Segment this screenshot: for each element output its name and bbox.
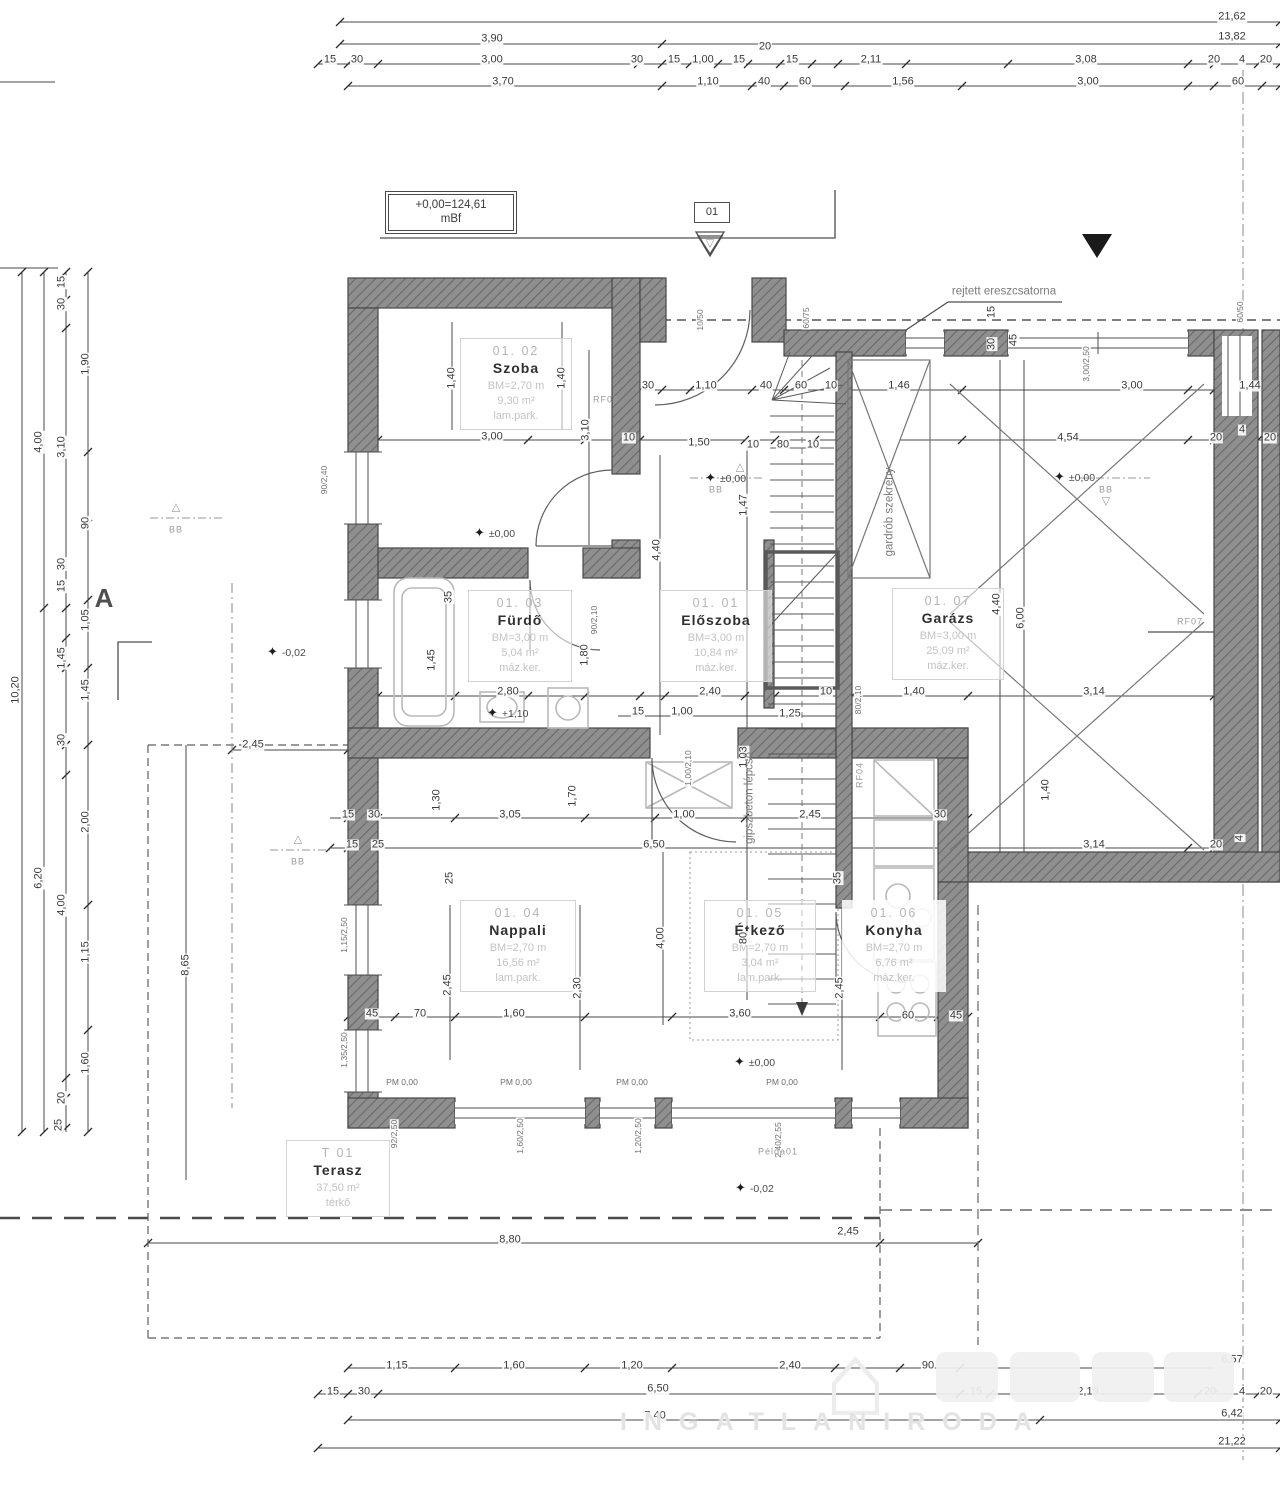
dim-label: 4 <box>1238 425 1246 436</box>
room-floor: máz.ker. <box>847 971 941 986</box>
dim-label: 1,45 <box>427 648 438 671</box>
dim-label: 6,50 <box>646 1384 669 1395</box>
room-floor: lam.park. <box>465 409 567 424</box>
dim-label: 92/2,50 <box>390 1119 399 1149</box>
dim-label: 1,60/2,50 <box>516 1117 525 1154</box>
dim-label: 1,90 <box>81 352 92 375</box>
dim-label: 60 <box>794 381 808 392</box>
dim-label: 30 <box>933 810 947 821</box>
dim-label: PM 0,00 <box>765 1078 799 1087</box>
room-label-konyha: 01. 06 Konyha BM=2,70 m 6,76 m² máz.ker. <box>842 900 946 992</box>
dim-label: 1,20 <box>620 1361 643 1372</box>
room-id: 01. 01 <box>665 596 767 610</box>
dim-label: 15 <box>57 579 68 593</box>
room-height: BM=2,70 m <box>465 379 567 394</box>
room-floor: máz.ker. <box>473 661 567 676</box>
dim-label: 1,45 <box>57 646 68 669</box>
dim-label: 1,60 <box>81 1051 92 1074</box>
dim-label: 20 <box>1207 55 1221 66</box>
dim-label: 2,45 <box>798 810 821 821</box>
dim-label: 1,25 <box>778 709 801 720</box>
dim-label: 2,19 <box>1076 1387 1099 1398</box>
dim-label: 30 <box>367 810 381 821</box>
room-id: 01. 02 <box>465 344 567 358</box>
room-name: Étkező <box>709 922 811 938</box>
dim-label: 2,45 <box>241 740 264 751</box>
dim-label: 25 <box>54 1118 65 1132</box>
room-id: 01. 04 <box>465 906 571 920</box>
dim-label: 15 <box>631 707 645 718</box>
dim-label: 15 <box>785 55 799 66</box>
dim-label: 45 <box>1009 333 1020 347</box>
dim-label: 30 <box>987 337 998 351</box>
dim-label: 15 <box>57 275 68 289</box>
dim-label: 80/2,10 <box>854 685 863 715</box>
dim-label: 1,40 <box>1041 778 1052 801</box>
dim-label: 15 <box>326 1387 340 1398</box>
room-name: Nappali <box>465 922 571 938</box>
room-height: BM=3,00 m <box>473 631 567 646</box>
dim-label: 30 <box>641 381 655 392</box>
dim-label: 1,15 <box>385 1361 408 1372</box>
dim-label: 1,15/2,50 <box>340 916 349 953</box>
dim-label: 20 <box>1259 55 1273 66</box>
room-height: BM=2,70 m <box>847 941 941 956</box>
room-label-terasz: T 01 Terasz 37,50 m² térkő <box>286 1140 390 1217</box>
spot-marker-icon: ✦ <box>734 1054 745 1069</box>
room-area: 5,04 m² <box>473 646 567 661</box>
room-label-eloszoba: 01. 01 Előszoba BM=3,00 m 10,84 m² máz.k… <box>660 590 772 682</box>
dim-label: 2,40 <box>698 687 721 698</box>
room-height: BM=2,70 m <box>709 941 811 956</box>
dim-label: 6,42 <box>1220 1409 1243 1420</box>
annotation: ▽ <box>706 239 714 250</box>
room-area: 9,30 m² <box>465 394 567 409</box>
dim-label: 60 <box>798 77 812 88</box>
dim-label: 4,40 <box>992 592 1003 615</box>
dim-label: 8,80 <box>498 1235 521 1246</box>
dim-label: 20 <box>1259 1387 1273 1398</box>
dim-label: 1,80 <box>580 643 591 666</box>
dim-label: 1,15 <box>81 940 92 963</box>
dim-label: 4,00 <box>656 926 667 949</box>
room-floor: lam.park. <box>709 971 811 986</box>
dim-label: 2,80 <box>496 687 519 698</box>
dim-label: 3,00 <box>1076 77 1099 88</box>
dim-label: 30 <box>57 297 68 311</box>
dim-label: 20 <box>57 1091 68 1105</box>
dim-label: 2,00 <box>81 810 92 833</box>
dim-label: 60/50 <box>1236 300 1245 323</box>
spot-level: ✦±0,00 <box>1054 469 1095 485</box>
room-area: 10,84 m² <box>665 646 767 661</box>
dim-label: 90/2,10 <box>590 605 599 635</box>
room-id: 01. 05 <box>709 906 811 920</box>
room-floor: máz.ker. <box>665 661 767 676</box>
spot-level: ✦-0,02 <box>735 1180 774 1196</box>
room-name: Konyha <box>847 922 941 938</box>
annotation: A <box>95 585 114 611</box>
room-area: 6,76 m² <box>847 956 941 971</box>
room-label-furdo: 01. 03 Fürdő BM=3,00 m 5,04 m² máz.ker. <box>468 590 572 682</box>
annotation: Példa01 <box>758 1148 798 1157</box>
dim-label: 1,10 <box>694 381 717 392</box>
dim-label: 15 <box>732 55 746 66</box>
dim-label: 4,40 <box>652 538 663 561</box>
dim-label: 10 <box>824 381 838 392</box>
annotation: BB <box>1099 486 1113 495</box>
dim-label: 20 <box>1209 433 1223 444</box>
spot-level: ✦±0,00 <box>474 525 515 541</box>
room-id: 01. 06 <box>847 906 941 920</box>
room-area: 25,09 m² <box>897 644 999 659</box>
dim-label: 2,40 <box>778 1361 801 1372</box>
dim-label: 1,00 <box>691 55 714 66</box>
dim-label: 1,20/2,50 <box>634 1117 643 1154</box>
dim-label: 60 <box>1231 77 1245 88</box>
dim-label: 3,00/2,50 <box>1082 345 1091 382</box>
dim-label: 60 <box>901 1011 915 1022</box>
room-height: BM=3,00 m <box>897 629 999 644</box>
dim-label: 45 <box>365 1009 379 1020</box>
dim-label: 6,50 <box>642 840 665 851</box>
room-label-nappali: 01. 04 Nappali BM=2,70 m 16,56 m² lam.pa… <box>460 900 576 992</box>
dim-label: 1,50 <box>687 438 710 449</box>
dim-label: 3,05 <box>498 810 521 821</box>
annotation: BB <box>291 858 305 867</box>
spot-marker-icon: ✦ <box>735 1180 746 1195</box>
dim-label: 10 <box>622 433 636 444</box>
room-id: T 01 <box>291 1146 385 1160</box>
dim-label: 1,00 <box>672 810 695 821</box>
spot-marker-icon: ✦ <box>474 525 485 540</box>
dim-label: 15 <box>345 840 359 851</box>
dim-label: 4 <box>1238 1387 1246 1398</box>
dim-label: 30 <box>630 55 644 66</box>
dim-label: 1,60 <box>502 1361 525 1372</box>
room-height: BM=3,00 m <box>665 631 767 646</box>
dim-label: 3,00 <box>480 432 503 443</box>
dim-label: 3,14 <box>1082 840 1105 851</box>
dim-label: PM 0,00 <box>615 1078 649 1087</box>
annotation: △ <box>294 835 302 846</box>
dim-label: 1,30 <box>432 788 443 811</box>
dim-label: 1,05 <box>81 608 92 631</box>
dim-label: 25 <box>445 871 456 885</box>
dim-label: 4,00 <box>57 893 68 916</box>
dim-label: 6,57 <box>1220 1355 1243 1366</box>
dim-label: 1,40 <box>902 687 925 698</box>
dim-label: 40 <box>757 77 771 88</box>
dim-label: 2,30 <box>573 976 584 999</box>
dim-label: 3,00 <box>1120 381 1143 392</box>
dim-label: 1,46 <box>887 381 910 392</box>
dim-label: 6,00 <box>1016 606 1027 629</box>
spot-marker-icon: ✦ <box>705 470 716 485</box>
dim-label: 6,20 <box>34 866 45 889</box>
spot-marker-icon: ✦ <box>1054 469 1065 484</box>
room-area: 16,56 m² <box>465 956 571 971</box>
dim-label: 15 <box>323 55 337 66</box>
dim-label: PM 0,00 <box>385 1078 419 1087</box>
dim-label: 3,70 <box>491 77 514 88</box>
spot-level: ✦±0,00 <box>734 1054 775 1070</box>
dim-label: 10,20 <box>11 675 22 705</box>
dim-label: 35 <box>444 590 455 604</box>
annotation: RF03 <box>593 396 619 405</box>
room-name: Terasz <box>291 1162 385 1178</box>
dim-label: 25 <box>371 840 385 851</box>
plan-drawing <box>0 0 1280 1501</box>
spot-marker-icon: ✦ <box>267 644 278 659</box>
dim-label: 90 <box>81 516 92 530</box>
dim-label: 1,47 <box>739 493 750 516</box>
dim-label: 2,11 <box>860 55 883 66</box>
dim-label: 30 <box>57 557 68 571</box>
dim-label: 30 <box>357 1387 371 1398</box>
room-label-etkezo: 01. 05 Étkező BM=2,70 m 3,04 m² lam.park… <box>704 900 816 992</box>
dim-label: 1,70 <box>568 784 579 807</box>
room-id: 01. 07 <box>897 594 999 608</box>
annotation: RF04 <box>856 762 865 788</box>
dim-label: 3,08 <box>1074 55 1097 66</box>
dim-label: 20 <box>1209 840 1223 851</box>
annotation: BB <box>169 526 183 535</box>
room-floor: máz.ker. <box>897 659 999 674</box>
dim-label: 3,00 <box>480 55 503 66</box>
room-area: 3,04 m² <box>709 956 811 971</box>
spot-marker-icon: ✦ <box>487 705 498 720</box>
annotation: BB <box>709 486 723 495</box>
dim-label: 10 <box>746 440 760 451</box>
dim-label: 1,60 <box>502 1009 525 1020</box>
annotation: RF07 <box>1177 618 1203 627</box>
dim-label: 1,00 <box>670 707 693 718</box>
dim-label: 80 <box>776 440 790 451</box>
dim-label: 3,60 <box>728 1009 751 1020</box>
dim-label: 30 <box>57 733 68 747</box>
dim-label: 8,65 <box>181 953 192 976</box>
dim-label: 1,56 <box>891 77 914 88</box>
dim-label: 21,62 <box>1217 12 1247 23</box>
room-floor: térkő <box>291 1196 385 1211</box>
dim-label: 3,10 <box>581 418 592 441</box>
datum-level-box: +0,00=124,61 mBf <box>388 194 514 231</box>
dim-label: 2,45 <box>443 973 454 996</box>
datum-unit: mBf <box>389 212 513 226</box>
dim-label: 1,40 <box>447 366 458 389</box>
annotation: gipszbeton lépcső <box>744 752 756 844</box>
dim-label: 20 <box>1203 1387 1217 1398</box>
room-floor: lam.park. <box>465 971 571 986</box>
dim-label: 4,54 <box>1056 433 1079 444</box>
dim-label: 3,90 <box>480 34 503 45</box>
dim-label: 3,14 <box>1082 687 1105 698</box>
dim-label: 90 <box>921 1361 935 1372</box>
annotation: rejtett ereszcsatorna <box>952 286 1056 298</box>
room-name: Előszoba <box>665 612 767 628</box>
room-name: Fürdő <box>473 612 567 628</box>
dim-label: 15 <box>987 305 998 319</box>
annotation: △ <box>736 463 744 474</box>
dim-label: 2,45 <box>836 1227 859 1238</box>
annotation: △ <box>172 503 180 514</box>
room-height: BM=2,70 m <box>465 941 571 956</box>
dim-label: 90/2,40 <box>320 465 329 495</box>
dim-label: 15 <box>667 55 681 66</box>
dim-label: PM 0,00 <box>499 1078 533 1087</box>
dim-label: 1,00/2,10 <box>684 749 693 786</box>
dim-label: 4 <box>1238 55 1246 66</box>
floorplan-page: +0,00=124,61 mBf 01 01. 02 Szoba BM=2,70… <box>0 0 1280 1501</box>
dim-label: 30 <box>350 55 364 66</box>
dim-label: 10/50 <box>696 308 705 331</box>
spot-level: ✦-0,02 <box>267 644 306 660</box>
dim-label: 1,10 <box>696 77 719 88</box>
entry-marker: 01 <box>694 202 730 223</box>
dim-label: 70 <box>413 1009 427 1020</box>
annotation: gardrób szekrény <box>884 468 896 557</box>
dim-label: 4 <box>1235 834 1246 842</box>
dim-label: 10 <box>819 687 833 698</box>
room-label-garazs: 01. 07 Garázs BM=3,00 m 25,09 m² máz.ker… <box>892 588 1004 680</box>
dim-label: 20 <box>1263 433 1277 444</box>
annotation: ▽ <box>1102 497 1110 508</box>
dim-label: 4,00 <box>34 430 45 453</box>
spot-level: ✦+1,10 <box>487 705 528 721</box>
dim-label: 60/75 <box>802 306 811 329</box>
dim-label: 15 <box>969 1387 983 1398</box>
dim-label: 1,40 <box>557 366 568 389</box>
dim-label: 7,40 <box>643 1411 666 1422</box>
room-name: Szoba <box>465 360 567 376</box>
dim-label: 15 <box>341 810 355 821</box>
dim-label: 3,10 <box>57 435 68 458</box>
dim-label: 1,45 <box>81 678 92 701</box>
dim-label: 80 <box>739 931 750 945</box>
dim-label: 13,82 <box>1217 32 1247 43</box>
dim-label: 1,44 <box>1238 381 1261 392</box>
dim-label: 21,22 <box>1217 1437 1247 1448</box>
room-name: Garázs <box>897 610 999 626</box>
dim-label: 45 <box>949 1011 963 1022</box>
dim-label: 1,35/2,50 <box>340 1031 349 1068</box>
dim-label: 10 <box>806 440 820 451</box>
dim-label: 2,45 <box>835 976 846 999</box>
dim-label: 40 <box>759 381 773 392</box>
dim-label: 35 <box>833 871 844 885</box>
room-id: 01. 03 <box>473 596 567 610</box>
room-area: 37,50 m² <box>291 1181 385 1196</box>
dim-label: 20 <box>758 42 772 53</box>
datum-level: +0,00=124,61 <box>389 198 513 212</box>
